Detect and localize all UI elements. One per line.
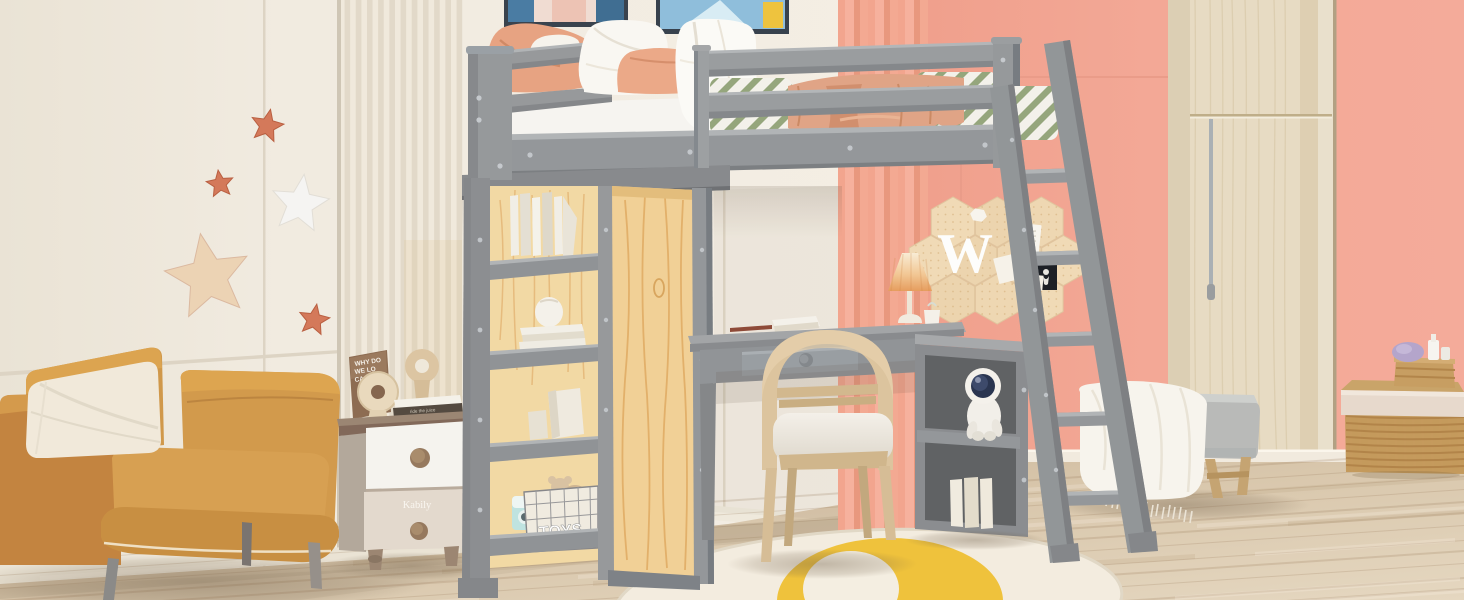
- svg-text:Kabily: Kabily: [403, 500, 432, 511]
- svg-text:W: W: [937, 223, 993, 285]
